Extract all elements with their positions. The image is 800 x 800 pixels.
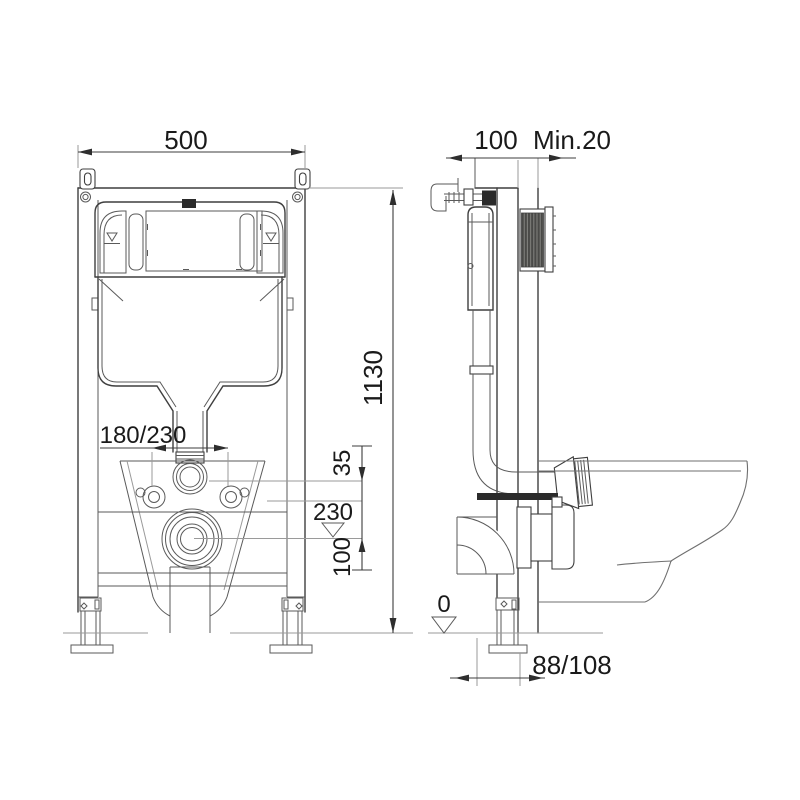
toilet-frame-installation-drawing: 500 1130 180/230 35 100 230 (0, 0, 800, 800)
drain-elbow (457, 515, 516, 574)
hanger-rod (477, 493, 558, 500)
dim-label-wall-min: Min.20 (533, 125, 611, 155)
cistern-side-profile (468, 207, 493, 310)
mounting-frame (78, 169, 310, 612)
flush-pipe-side (470, 310, 556, 494)
hanger-tab-left (80, 169, 95, 189)
dim-label-floor: 0 (437, 591, 450, 618)
dim-label-width: 500 (164, 125, 207, 155)
dim-label-outlet-offset: 88/108 (532, 650, 612, 680)
bracket-clamp-block (482, 191, 496, 206)
fixing-bolt-left (136, 486, 165, 508)
dim-outlet-offset: 88/108 (450, 638, 612, 686)
dim-label-invert-level: 230 (313, 499, 353, 526)
wall-bracket (431, 178, 496, 211)
drain-connector (517, 505, 574, 569)
dim-bolt-spacing: 180/230 (100, 422, 228, 486)
dim-label-flush-offset: 35 (329, 450, 356, 477)
dim-label-bolt-spacing: 180/230 (100, 422, 187, 449)
front-view: 500 1130 180/230 35 100 230 (63, 125, 413, 653)
datum-level-0: 0 (432, 591, 456, 633)
cross-rails (98, 512, 287, 586)
foot-right (270, 598, 312, 653)
water-level-icon (104, 233, 120, 244)
dim-label-depth: 100 (474, 125, 517, 155)
screw-hole-right (293, 192, 303, 202)
hanger-nut (552, 497, 562, 507)
dim-width-500: 500 (78, 125, 305, 168)
side-view: 100 Min.20 0 88/108 (428, 125, 748, 686)
hanger-tab-right (295, 169, 310, 189)
fixing-bolt-right (220, 486, 249, 508)
technical-drawing-page: 500 1130 180/230 35 100 230 (0, 0, 800, 800)
level-mark-230: 230 (313, 499, 353, 537)
water-level-icon (263, 233, 279, 244)
cistern-top (95, 199, 285, 301)
flush-plate-access-box (520, 207, 556, 272)
flush-pipe-port (173, 460, 207, 494)
screw-hole-left (81, 192, 91, 202)
dim-label-height: 1130 (358, 350, 388, 406)
drain-chute (170, 567, 210, 633)
top-bracket-block (182, 199, 196, 208)
foot-side (489, 598, 527, 653)
dim-label-drop: 100 (329, 537, 356, 577)
dim-depth-and-wall: 100 Min.20 (446, 125, 611, 188)
